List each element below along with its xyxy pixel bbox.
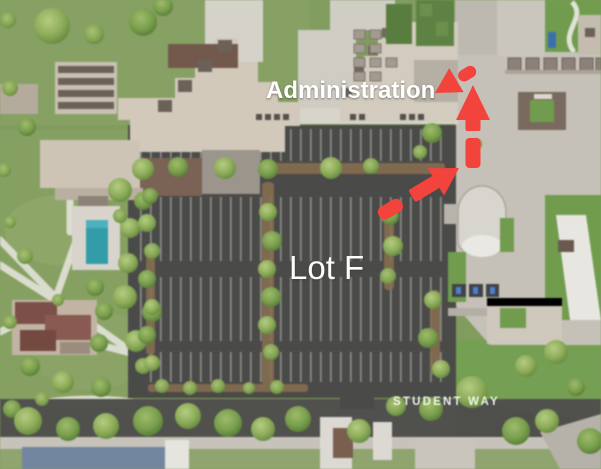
campus-map[interactable]: Administration Lot F STUDENT WAY — [0, 0, 601, 469]
route-arrow-up — [456, 85, 490, 168]
route-arrow-diagonal — [371, 154, 467, 229]
route-annotation-layer — [0, 0, 601, 469]
